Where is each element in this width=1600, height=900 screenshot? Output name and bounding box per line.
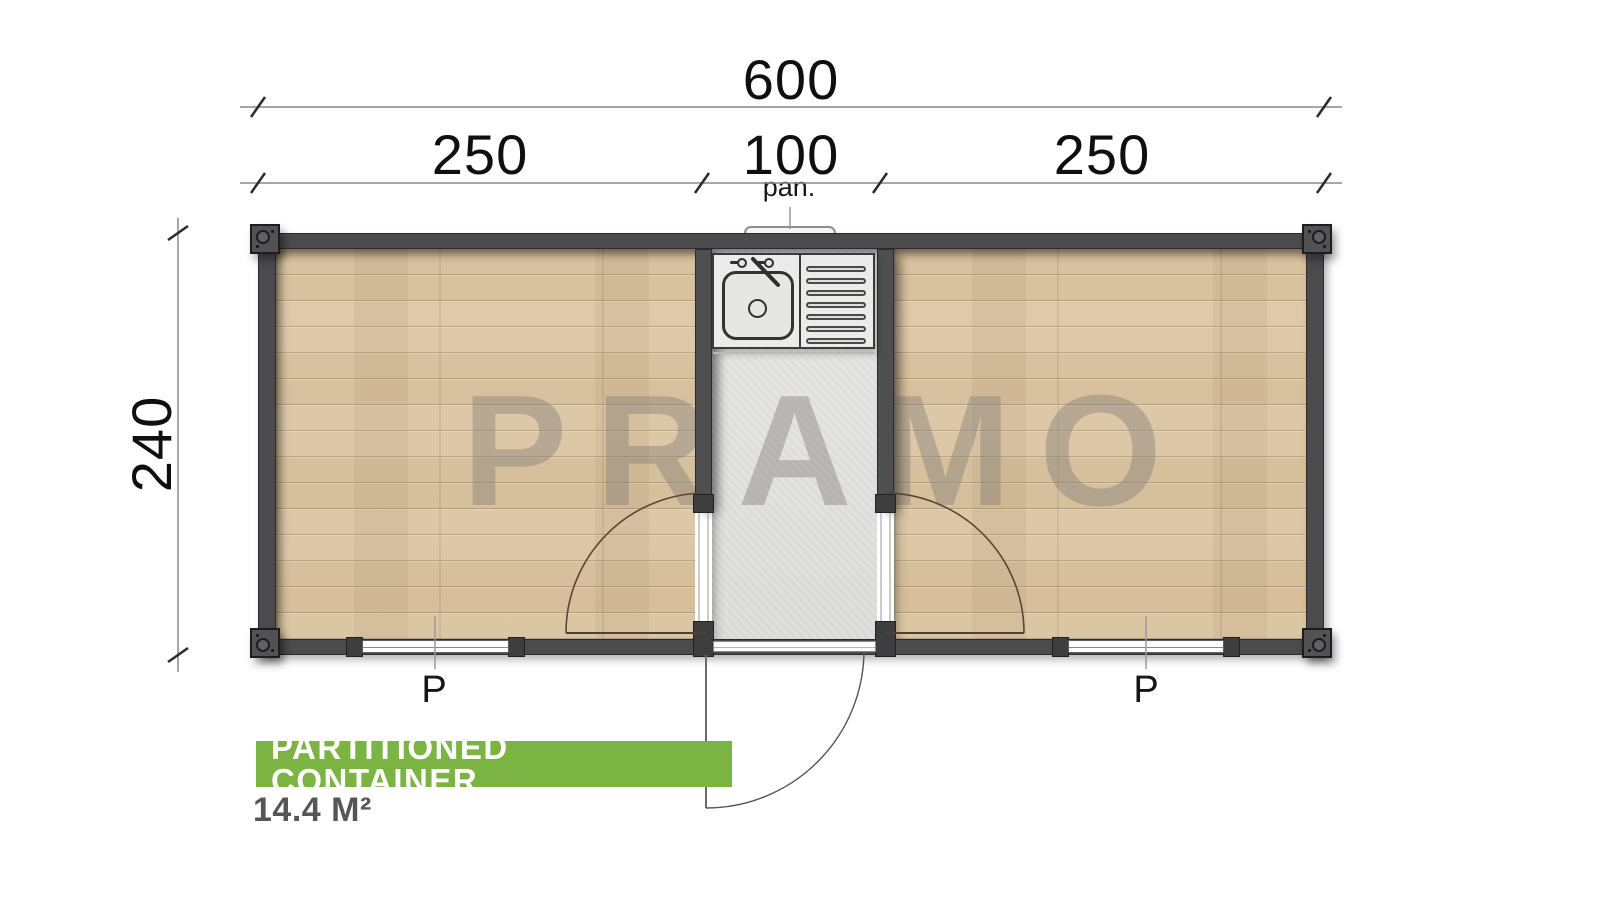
- plan-lines-overlay: [0, 0, 1600, 900]
- left-room-door-swing: [566, 493, 706, 633]
- title-banner-label: PARTITIONED CONTAINER: [271, 731, 717, 797]
- area-label: 14.4 M²: [253, 791, 372, 830]
- right-room-door-swing: [884, 493, 1024, 633]
- door-frame-lines: [699, 513, 890, 621]
- floor-plan-canvas: 600 250 100 250 240 pan. PRAMO: [0, 0, 1600, 900]
- title-banner: PARTITIONED CONTAINER: [256, 741, 732, 787]
- window-leader-lines: [435, 616, 1146, 669]
